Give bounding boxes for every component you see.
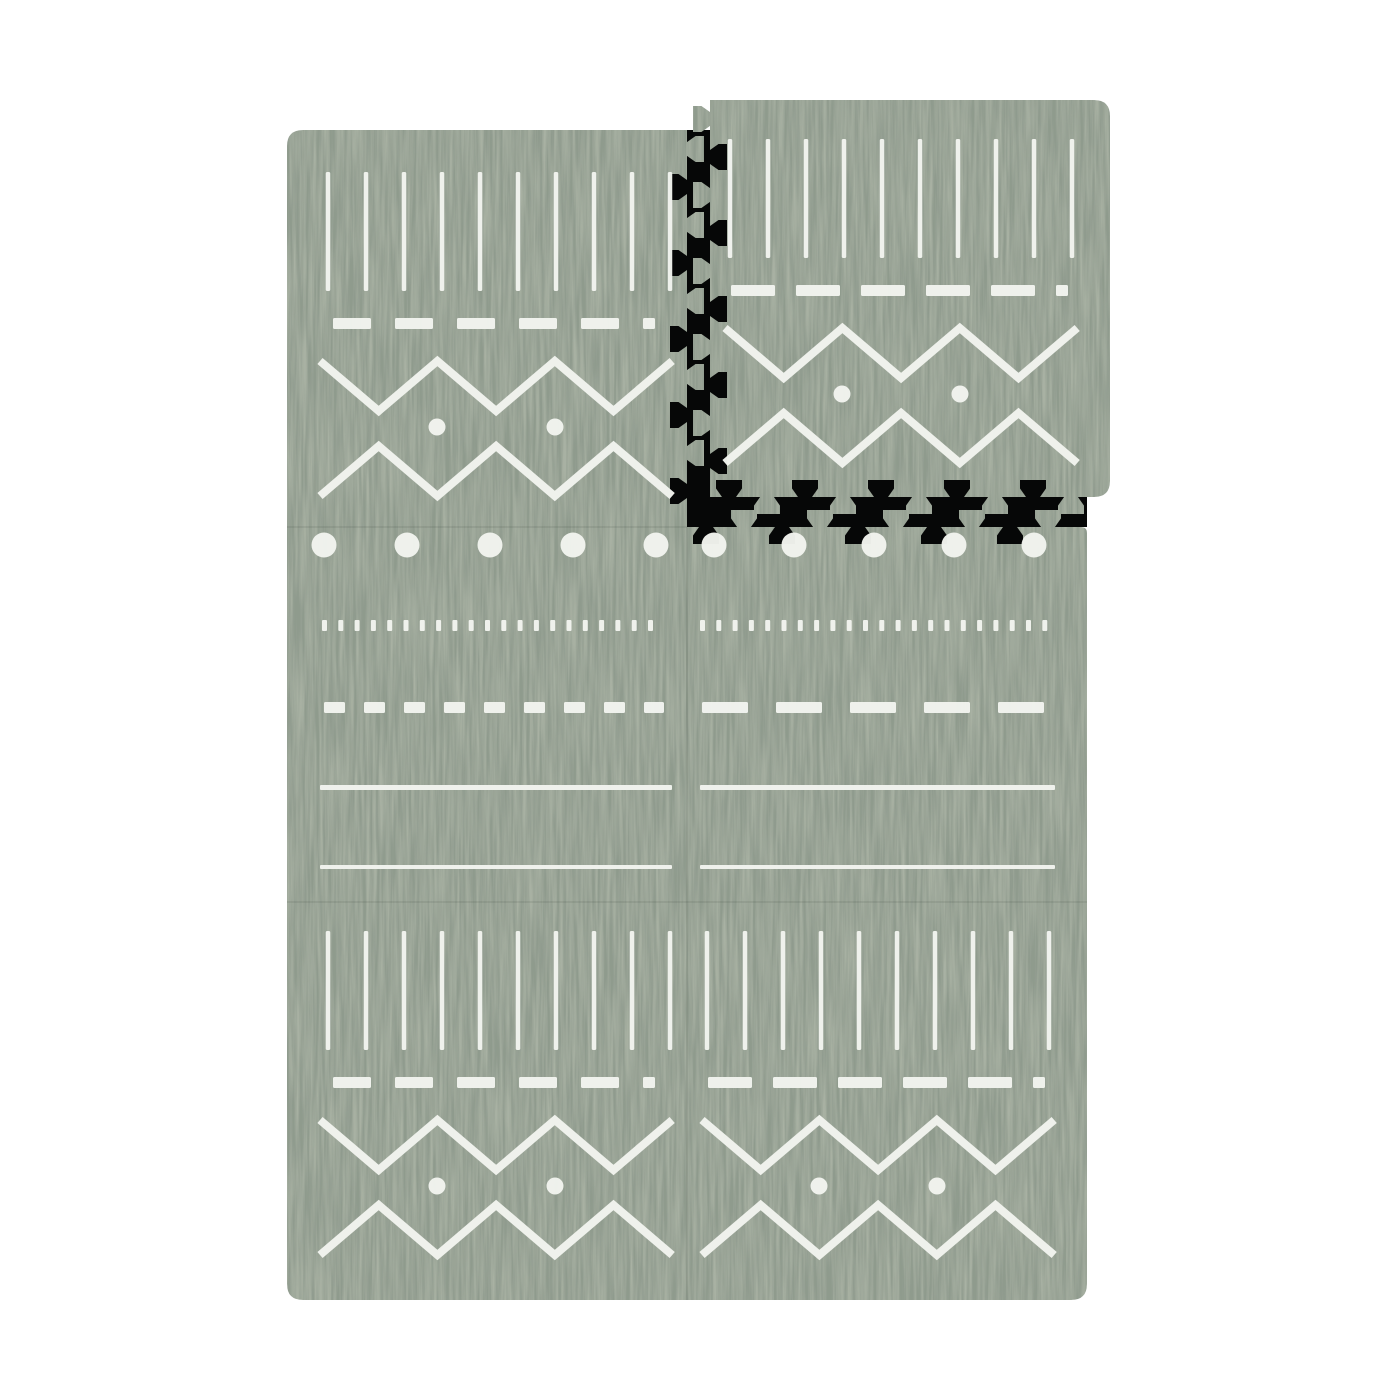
print-big-dot <box>644 533 669 558</box>
print-dash <box>564 702 585 713</box>
product-photo-canvas <box>0 0 1400 1400</box>
print-micro-dash <box>567 620 572 631</box>
print-micro-dash <box>387 620 392 631</box>
print-vertical-line <box>880 139 885 258</box>
print-dash <box>968 1077 1012 1088</box>
print-micro-dash <box>782 620 787 631</box>
print-vertical-line <box>326 931 331 1050</box>
print-vertical-line <box>592 931 597 1050</box>
print-vertical-line <box>781 931 786 1050</box>
print-micro-dash <box>518 620 523 631</box>
print-vertical-line <box>554 172 559 291</box>
print-small-dot <box>834 386 851 403</box>
print-vertical-line <box>478 172 483 291</box>
print-small-dot <box>547 419 564 436</box>
print-vertical-line <box>402 931 407 1050</box>
print-vertical-line <box>1070 139 1075 258</box>
print-micro-dash <box>912 620 917 631</box>
print-micro-dash <box>550 620 555 631</box>
print-dash <box>731 285 775 296</box>
print-micro-dash <box>322 620 327 631</box>
print-big-dot <box>561 533 586 558</box>
print-dash <box>457 318 495 329</box>
play-mat-product-image <box>0 0 1400 1400</box>
print-micro-dash <box>1042 620 1047 631</box>
print-vertical-line <box>516 172 521 291</box>
print-dash <box>796 285 840 296</box>
print-dash <box>773 1077 817 1088</box>
print-vertical-line <box>516 931 521 1050</box>
print-big-dot <box>862 533 887 558</box>
print-dash <box>484 702 505 713</box>
print-dash <box>519 318 557 329</box>
print-vertical-line <box>895 931 900 1050</box>
print-vertical-line <box>630 172 635 291</box>
print-micro-dash <box>452 620 457 631</box>
print-dash <box>838 1077 882 1088</box>
print-dash <box>395 1077 433 1088</box>
print-dash <box>1033 1077 1045 1088</box>
print-micro-dash <box>338 620 343 631</box>
print-big-dot <box>782 533 807 558</box>
print-solid-line <box>700 865 1055 869</box>
print-vertical-line <box>994 139 999 258</box>
print-micro-dash <box>977 620 982 631</box>
print-small-dot <box>547 1178 564 1195</box>
print-vertical-line <box>1047 931 1052 1050</box>
print-dash <box>708 1077 752 1088</box>
print-big-dot <box>702 533 727 558</box>
print-dash <box>333 1077 371 1088</box>
print-micro-dash <box>371 620 376 631</box>
print-big-dot <box>942 533 967 558</box>
print-solid-line <box>700 785 1055 790</box>
print-micro-dash <box>648 620 653 631</box>
print-dash <box>643 318 655 329</box>
print-vertical-line <box>956 139 961 258</box>
print-dash <box>581 1077 619 1088</box>
print-vertical-line <box>1009 931 1014 1050</box>
print-micro-dash <box>896 620 901 631</box>
print-micro-dash <box>1010 620 1015 631</box>
print-dash <box>998 702 1044 713</box>
print-micro-dash <box>1026 620 1031 631</box>
print-micro-dash <box>615 620 620 631</box>
print-micro-dash <box>814 620 819 631</box>
print-big-dot <box>395 533 420 558</box>
print-dash <box>364 702 385 713</box>
print-vertical-line <box>804 139 809 258</box>
print-micro-dash <box>700 620 705 631</box>
print-micro-dash <box>485 620 490 631</box>
detached-tile <box>693 100 1110 514</box>
print-micro-dash <box>928 620 933 631</box>
print-vertical-line <box>402 172 407 291</box>
print-micro-dash <box>599 620 604 631</box>
print-small-dot <box>429 419 446 436</box>
print-dash <box>404 702 425 713</box>
print-micro-dash <box>583 620 588 631</box>
print-dash <box>643 1077 655 1088</box>
print-dash <box>776 702 822 713</box>
detached-tile-foam <box>693 100 1110 514</box>
print-micro-dash <box>355 620 360 631</box>
print-micro-dash <box>961 620 966 631</box>
print-vertical-line <box>705 931 710 1050</box>
print-dash <box>444 702 465 713</box>
print-micro-dash <box>632 620 637 631</box>
print-vertical-line <box>478 931 483 1050</box>
print-vertical-line <box>918 139 923 258</box>
print-vertical-line <box>971 931 976 1050</box>
print-solid-line <box>320 865 672 869</box>
print-micro-dash <box>863 620 868 631</box>
print-dash <box>924 702 970 713</box>
print-dash <box>1056 285 1068 296</box>
print-big-dot <box>478 533 503 558</box>
print-vertical-line <box>933 931 938 1050</box>
print-dash <box>926 285 970 296</box>
print-vertical-line <box>819 931 824 1050</box>
print-micro-dash <box>765 620 770 631</box>
print-micro-dash <box>404 620 409 631</box>
print-dash <box>519 1077 557 1088</box>
print-micro-dash <box>534 620 539 631</box>
print-big-dot <box>1022 533 1047 558</box>
print-dash <box>702 702 748 713</box>
print-micro-dash <box>830 620 835 631</box>
print-vertical-line <box>668 931 673 1050</box>
print-dash <box>991 285 1035 296</box>
print-vertical-line <box>668 172 673 291</box>
print-dash <box>324 702 345 713</box>
print-micro-dash <box>749 620 754 631</box>
print-micro-dash <box>733 620 738 631</box>
print-vertical-line <box>842 139 847 258</box>
print-small-dot <box>952 386 969 403</box>
print-dash <box>581 318 619 329</box>
print-micro-dash <box>879 620 884 631</box>
print-micro-dash <box>993 620 998 631</box>
print-vertical-line <box>440 172 445 291</box>
print-small-dot <box>929 1178 946 1195</box>
print-vertical-line <box>364 931 369 1050</box>
print-micro-dash <box>436 620 441 631</box>
print-dash <box>395 318 433 329</box>
print-vertical-line <box>592 172 597 291</box>
print-dash <box>861 285 905 296</box>
print-dash <box>903 1077 947 1088</box>
print-solid-line <box>320 785 672 790</box>
print-micro-dash <box>847 620 852 631</box>
print-dash <box>604 702 625 713</box>
play-mat <box>287 100 1110 1300</box>
print-dash <box>333 318 371 329</box>
print-dash <box>850 702 896 713</box>
print-dash <box>457 1077 495 1088</box>
print-micro-dash <box>501 620 506 631</box>
print-big-dot <box>312 533 337 558</box>
print-vertical-line <box>630 931 635 1050</box>
print-vertical-line <box>766 139 771 258</box>
print-micro-dash <box>798 620 803 631</box>
print-vertical-line <box>326 172 331 291</box>
print-vertical-line <box>440 931 445 1050</box>
print-dash <box>524 702 545 713</box>
print-micro-dash <box>716 620 721 631</box>
print-micro-dash <box>469 620 474 631</box>
print-vertical-line <box>1032 139 1037 258</box>
print-vertical-line <box>554 931 559 1050</box>
print-small-dot <box>429 1178 446 1195</box>
print-small-dot <box>811 1178 828 1195</box>
print-vertical-line <box>364 172 369 291</box>
print-vertical-line <box>857 931 862 1050</box>
print-micro-dash <box>420 620 425 631</box>
print-dash <box>644 702 664 713</box>
print-micro-dash <box>945 620 950 631</box>
print-vertical-line <box>728 139 733 258</box>
print-vertical-line <box>743 931 748 1050</box>
